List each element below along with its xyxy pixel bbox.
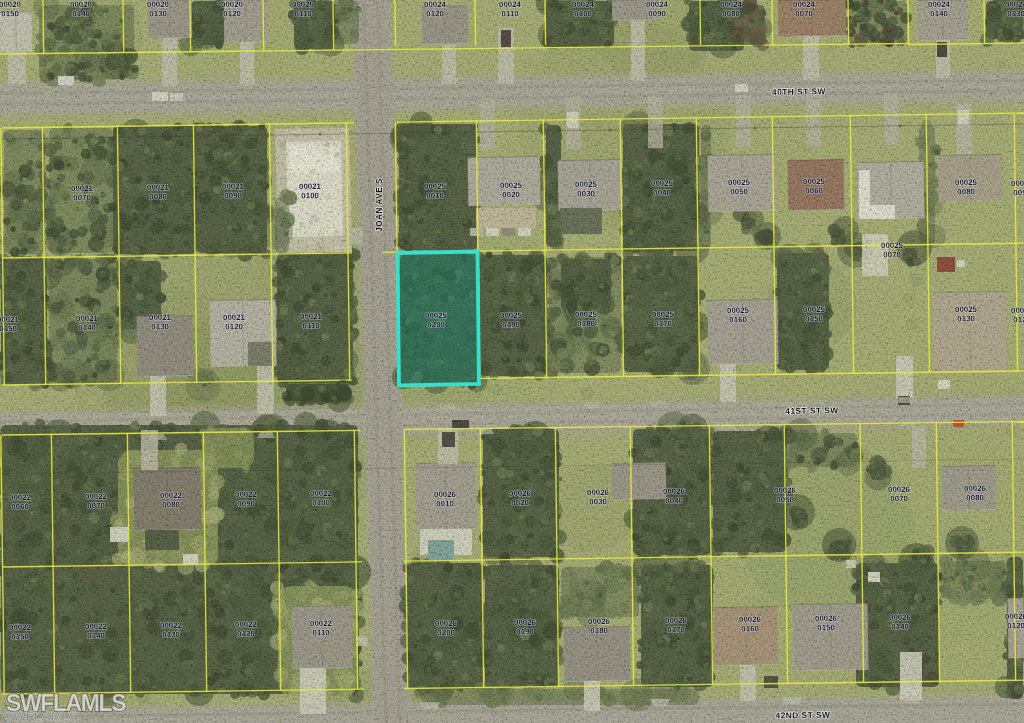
svg-text:000240100: 000240100 xyxy=(572,0,595,18)
svg-text:000200120: 000200120 xyxy=(221,0,244,18)
svg-text:000250190: 000250190 xyxy=(500,311,523,330)
svg-text:000250170: 000250170 xyxy=(652,310,675,329)
svg-text:000250200: 000250200 xyxy=(425,311,448,330)
svg-text:000220100: 000220100 xyxy=(310,489,333,508)
svg-text:000250120: 000250120 xyxy=(1011,306,1024,325)
svg-text:000260160: 000260160 xyxy=(739,615,762,634)
svg-text:000250060: 000250060 xyxy=(803,177,826,196)
svg-text:000220060: 000220060 xyxy=(9,493,32,512)
svg-text:000260050: 000260050 xyxy=(774,486,797,505)
svg-text:000250040: 000250040 xyxy=(651,179,674,198)
svg-text:000200110: 000200110 xyxy=(292,0,315,18)
svg-text:000260190: 000260190 xyxy=(514,618,537,637)
svg-text:JOAN AVE S: JOAN AVE S xyxy=(375,178,384,232)
svg-text:000210110: 000210110 xyxy=(300,312,323,331)
svg-text:SWFLAMLS: SWFLAMLS xyxy=(5,709,78,723)
svg-text:000250130: 000250130 xyxy=(955,305,978,324)
svg-text:000250030: 000250030 xyxy=(575,180,598,199)
svg-text:000220090: 000220090 xyxy=(235,490,258,509)
svg-text:40TH ST SW: 40TH ST SW xyxy=(772,86,826,97)
svg-text:000260020: 000260020 xyxy=(509,489,532,508)
svg-text:000220140: 000220140 xyxy=(85,622,108,641)
svg-text:000210070: 000210070 xyxy=(71,184,94,203)
svg-text:000250070: 000250070 xyxy=(881,241,904,260)
svg-text:000200150: 000200150 xyxy=(0,0,22,18)
svg-text:000210080: 000210080 xyxy=(147,183,170,202)
svg-text:000250160: 000250160 xyxy=(727,306,750,325)
svg-text:000210100: 000210100 xyxy=(299,182,322,201)
svg-text:000220130: 000220130 xyxy=(160,621,183,640)
svg-text:000210090: 000210090 xyxy=(222,182,245,201)
svg-text:42ND ST SW: 42ND ST SW xyxy=(775,710,830,721)
svg-text:000210150: 000210150 xyxy=(0,315,20,334)
svg-text:000250010: 000250010 xyxy=(424,182,447,201)
svg-text:000260140: 000260140 xyxy=(889,613,912,632)
svg-text:000250020: 000250020 xyxy=(500,181,523,200)
svg-text:000250150: 000250150 xyxy=(803,305,826,324)
svg-text:000250080: 000250080 xyxy=(955,178,978,197)
svg-text:000260030: 000260030 xyxy=(587,488,610,507)
svg-text:000260200: 000260200 xyxy=(435,619,458,638)
svg-text:000240070: 000240070 xyxy=(793,0,816,18)
svg-text:000210120: 000210120 xyxy=(223,313,246,332)
svg-text:000210140: 000210140 xyxy=(76,314,99,333)
svg-text:000260180: 000260180 xyxy=(588,617,611,636)
svg-text:000240110: 000240110 xyxy=(499,0,522,18)
svg-text:000260080: 000260080 xyxy=(964,484,987,503)
svg-text:000220150: 000220150 xyxy=(9,623,32,642)
svg-text:000200140: 000200140 xyxy=(70,0,93,18)
svg-text:000220110: 000220110 xyxy=(310,619,333,638)
svg-text:000210130: 000210130 xyxy=(149,313,172,332)
svg-text:000260120: 000260120 xyxy=(1005,612,1024,631)
svg-text:000260040: 000260040 xyxy=(663,487,686,506)
svg-text:000240090: 000240090 xyxy=(646,0,669,18)
svg-text:000240080: 000240080 xyxy=(720,0,743,18)
svg-text:000250090: 000250090 xyxy=(1011,179,1024,198)
svg-text:000260170: 000260170 xyxy=(665,616,688,635)
svg-text:000260150: 000260150 xyxy=(815,614,838,633)
svg-text:000260010: 000260010 xyxy=(434,490,457,509)
svg-text:000240130: 000240130 xyxy=(1005,0,1024,18)
svg-text:000250180: 000250180 xyxy=(575,310,598,329)
svg-text:000220120: 000220120 xyxy=(235,620,258,639)
svg-text:000250050: 000250050 xyxy=(728,178,751,197)
svg-text:000220080: 000220080 xyxy=(160,491,183,510)
svg-text:000260070: 000260070 xyxy=(888,485,911,504)
svg-text:000220070: 000220070 xyxy=(85,492,108,511)
svg-text:41ST ST SW: 41ST ST SW xyxy=(785,405,839,416)
svg-text:000240140: 000240140 xyxy=(928,0,951,18)
svg-text:000200130: 000200130 xyxy=(147,0,170,18)
svg-text:000240120: 000240120 xyxy=(424,0,447,18)
